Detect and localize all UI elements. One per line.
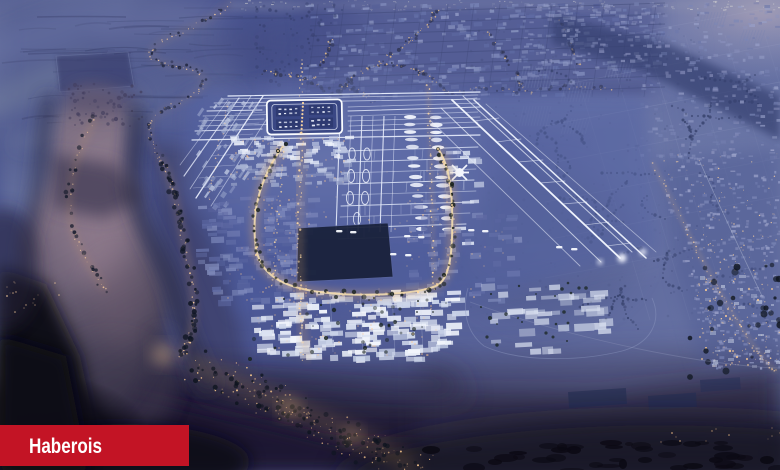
svg-text:Haberois: Haberois (29, 434, 102, 458)
